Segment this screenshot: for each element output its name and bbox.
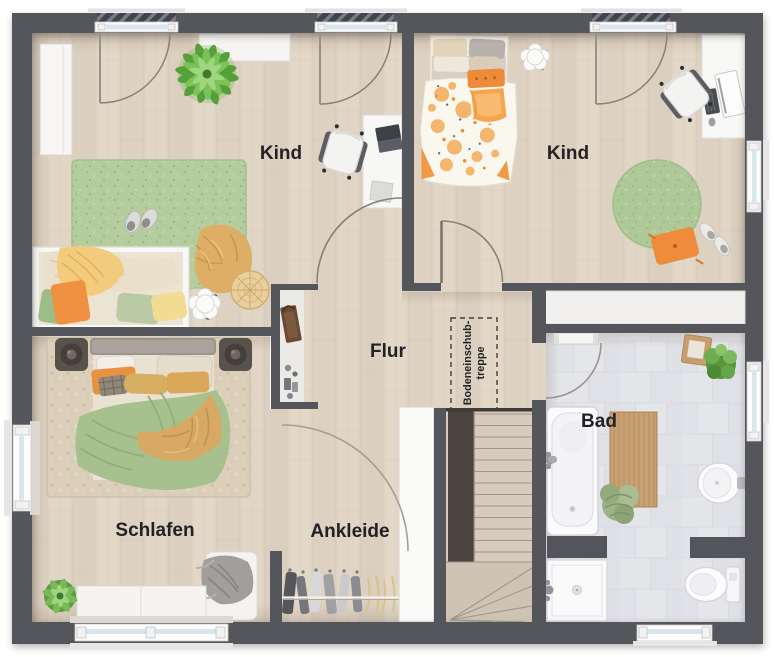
svg-text:Schlafen: Schlafen bbox=[115, 520, 194, 541]
svg-text:Kind: Kind bbox=[547, 143, 589, 164]
svg-text:Bad: Bad bbox=[581, 411, 617, 432]
svg-text:Ankleide: Ankleide bbox=[310, 521, 389, 542]
svg-text:Bodeneinschub-: Bodeneinschub- bbox=[462, 320, 474, 405]
svg-text:treppe: treppe bbox=[475, 347, 487, 380]
svg-text:Kind: Kind bbox=[260, 143, 302, 164]
svg-text:Flur: Flur bbox=[370, 341, 406, 362]
